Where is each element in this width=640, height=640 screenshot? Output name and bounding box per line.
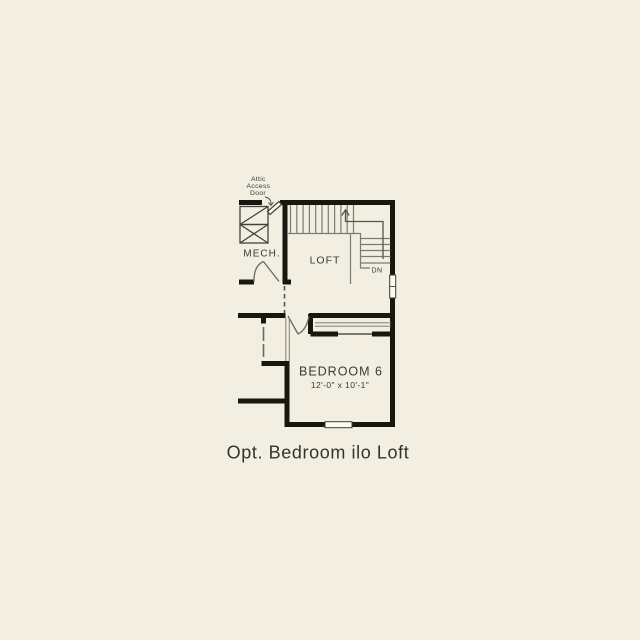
stair-dn-label: DN — [371, 268, 382, 275]
background — [0, 0, 640, 640]
bedroom-room-label: BEDROOM 6 — [299, 365, 383, 379]
bedroom-dims-label: 12'-0" x 10'-1" — [311, 380, 369, 390]
bedroom-window — [325, 422, 352, 428]
attic-label-line1: Attic — [251, 176, 266, 183]
loft-window — [390, 275, 396, 298]
plan-caption: Opt. Bedroom ilo Loft — [227, 443, 410, 463]
floorplan-canvas: Attic Access Door MECH. LOFT DN BEDROOM … — [0, 0, 640, 640]
mech-room-label: MECH. — [243, 249, 280, 260]
loft-room-label: LOFT — [310, 255, 341, 267]
attic-label-line2: Access — [247, 183, 271, 190]
attic-label-line3: Door — [250, 190, 266, 197]
floorplan-drawing: Attic Access Door MECH. LOFT DN BEDROOM … — [0, 0, 640, 640]
